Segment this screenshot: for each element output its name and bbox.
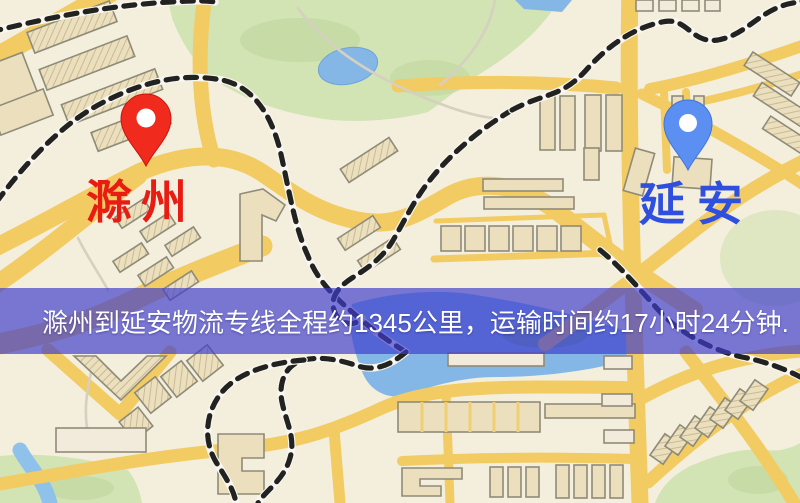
logistics-route-map-image: 滁州 延安 滁州到延安物流专线全程约1345公里，运输时间约17小时24分钟. xyxy=(0,0,800,503)
map-canvas xyxy=(0,0,800,503)
origin-city-label: 滁州 xyxy=(86,179,196,225)
destination-city-label: 延安 xyxy=(639,181,755,227)
route-info-banner: 滁州到延安物流专线全程约1345公里，运输时间约17小时24分钟. xyxy=(0,288,800,354)
route-info-text: 滁州到延安物流专线全程约1345公里，运输时间约17小时24分钟. xyxy=(0,303,789,340)
